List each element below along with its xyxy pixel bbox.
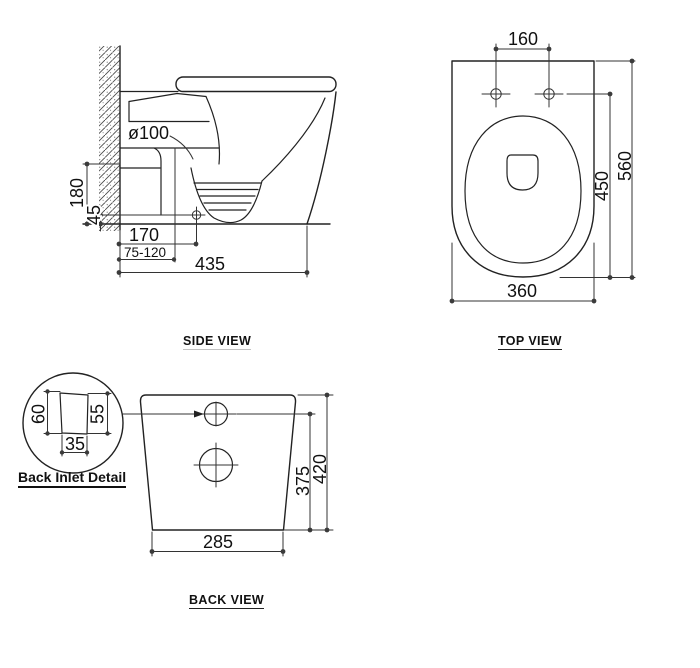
bowl-back-curve [206, 97, 219, 165]
seat-fixing-hole-right-cross [535, 44, 563, 107]
dim-endpoint-dot [494, 47, 499, 52]
dim-435-text: 435 [195, 254, 225, 274]
dim-endpoint-dot [45, 431, 49, 435]
dim-endpoint-dot [194, 242, 199, 247]
seat-profile [176, 77, 336, 92]
bowl-front-curve [262, 98, 325, 181]
dim-60-text: 60 [29, 404, 49, 424]
dim-endpoint-dot [630, 59, 635, 64]
dim-endpoint-dot [117, 270, 122, 275]
dim-170-text: 170 [129, 225, 159, 245]
seat-fixing-hole-left-cross [482, 44, 510, 107]
back-inlet-detail-label: Back Inlet Detail [18, 469, 126, 488]
dim-55-text: 55 [88, 404, 108, 424]
detail-leader-arrowhead [194, 411, 204, 418]
dim-450-text: 450 [592, 171, 612, 201]
dim-endpoint-dot [308, 412, 313, 417]
wall-hatch [99, 46, 120, 231]
dim-outlet-dia-text: ø100 [128, 123, 169, 143]
dim-endpoint-dot [45, 389, 49, 393]
dim-endpoint-dot [450, 299, 455, 304]
dim-endpoint-dot [60, 450, 64, 454]
dim-endpoint-dot [592, 299, 597, 304]
technical-drawing: 180 45 ø100 170 75-120 435 160 [0, 0, 700, 668]
inlet-channel-top [129, 94, 206, 102]
dim-360-text: 360 [507, 281, 537, 301]
dim-endpoint-dot [281, 549, 286, 554]
dim-75-120-text: 75-120 [124, 245, 166, 260]
drain-crosshair-arms [188, 207, 205, 246]
dim-endpoint-dot [608, 92, 613, 97]
dim-45-text: 45 [84, 205, 104, 225]
side-view: 180 45 ø100 170 75-120 435 [67, 46, 336, 277]
dim-endpoint-dot [85, 162, 90, 167]
dim-35-text: 35 [65, 434, 85, 454]
dim-285-text: 285 [203, 532, 233, 552]
dim-endpoint-dot [150, 549, 155, 554]
dim-endpoint-dot [608, 275, 613, 280]
pan-outer-profile [307, 92, 336, 224]
flush-outlet-hole [507, 155, 538, 190]
back-view: 375 420 285 [123, 393, 333, 556]
dim-endpoint-dot [325, 393, 330, 398]
dim-endpoint-dot [85, 450, 89, 454]
outlet-pipe-left [154, 148, 161, 215]
drawing-sheet: 180 45 ø100 170 75-120 435 160 [0, 0, 700, 668]
back-view-label: BACK VIEW [189, 593, 264, 609]
side-view-label: SIDE VIEW [183, 334, 251, 350]
dim-560-text: 560 [615, 151, 635, 181]
dim-endpoint-dot [105, 431, 109, 435]
dim-endpoint-dot [305, 270, 310, 275]
dim-endpoint-dot [105, 391, 109, 395]
dim-endpoint-dot [117, 257, 121, 261]
dim-endpoint-dot [325, 528, 330, 533]
dim-420-text: 420 [310, 454, 330, 484]
dim-180-text: 180 [67, 178, 87, 208]
pan-outline [452, 61, 594, 277]
back-inlet-detail: 60 55 35 [23, 373, 123, 473]
dim-endpoint-dot [630, 275, 635, 280]
water-trap-basin [191, 168, 262, 223]
dim-endpoint-dot [547, 47, 552, 52]
dim-endpoint-dot [117, 242, 122, 247]
top-view: 160 450 560 360 [450, 29, 635, 303]
dim-endpoint-dot [172, 257, 176, 261]
flush-button-cross [194, 443, 238, 487]
dim-160-text: 160 [508, 29, 538, 49]
top-view-label: TOP VIEW [498, 334, 562, 350]
